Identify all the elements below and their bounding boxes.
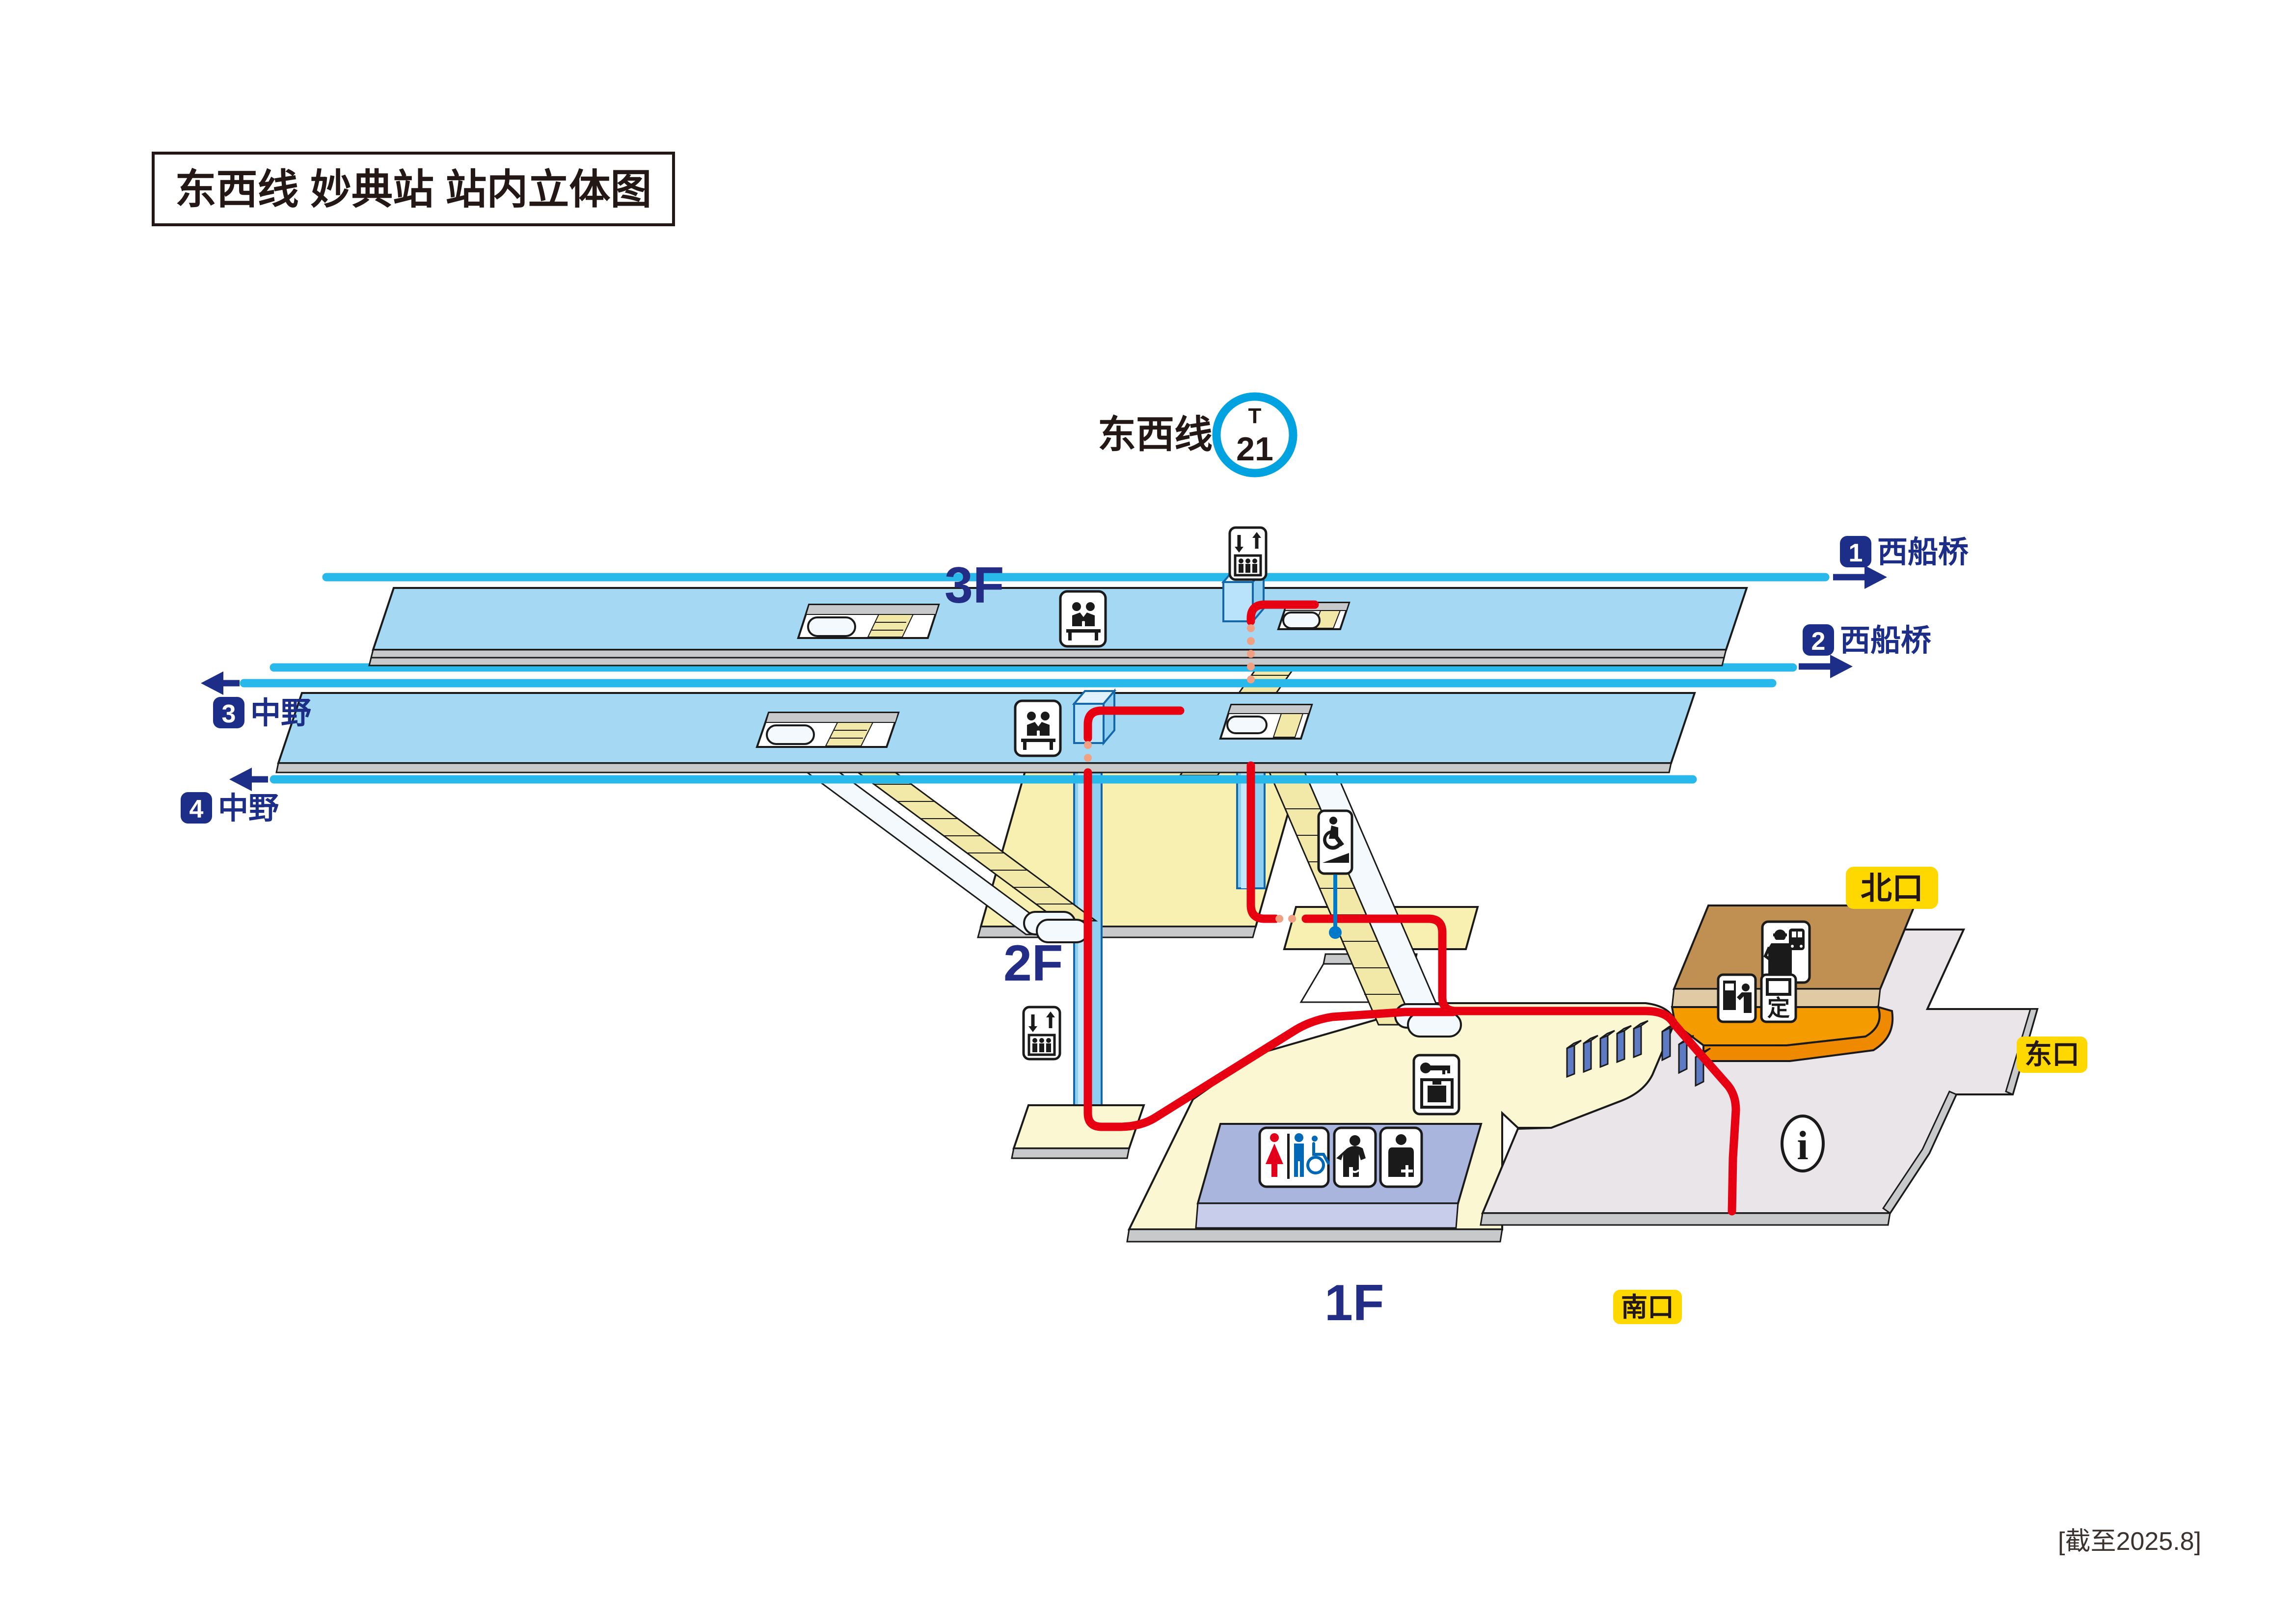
information-icon: i	[1782, 1116, 1823, 1171]
direction-1: 1 西船桥	[1833, 535, 1969, 589]
station-code-number: 21	[1236, 430, 1273, 468]
exit-badge-south: 南口	[1613, 1290, 1682, 1324]
baby-care-icon	[1334, 1128, 1376, 1187]
line-name: 东西线	[1098, 413, 1213, 456]
track-number: 3	[222, 700, 236, 728]
toilet-icon	[1260, 1128, 1328, 1187]
ticket-machine-icon	[1718, 975, 1756, 1022]
track-number: 4	[189, 795, 204, 824]
information-char: i	[1797, 1123, 1808, 1169]
destination-label: 中野	[218, 792, 279, 825]
escalator-foot	[1408, 1013, 1461, 1037]
station-3d-map: 1 西船桥 2 西船桥 3 中野 4 中野	[0, 0, 2296, 1623]
elevator-landing-1f	[1012, 1105, 1144, 1158]
escalator-foot	[767, 725, 814, 744]
station-office-icon	[1762, 922, 1810, 983]
divider	[1287, 1134, 1290, 1179]
floor-label-3f: 3F	[945, 557, 1004, 614]
arrow-left-icon	[229, 768, 252, 791]
stair-opening	[798, 605, 939, 638]
exit-label: 东口	[2025, 1039, 2080, 1070]
elevator-icon	[1230, 528, 1266, 580]
title-text: 东西线 妙典站 站内立体图	[175, 166, 652, 213]
elevator-icon	[1024, 1007, 1060, 1059]
commuter-pass-char: 定	[1767, 995, 1790, 1021]
exit-label: 南口	[1621, 1293, 1674, 1322]
escalator-foot	[1227, 717, 1267, 733]
revision-note: [截至2025.8]	[2058, 1527, 2201, 1556]
map-title: 东西线 妙典站 站内立体图	[153, 153, 674, 225]
station-code-letter: T	[1248, 404, 1262, 428]
destination-label: 中野	[250, 696, 311, 730]
arrow-left-icon	[201, 671, 223, 695]
platform-1	[369, 569, 1747, 665]
station-symbol: 东西线 T 21	[1098, 397, 1293, 473]
track-number: 1	[1849, 539, 1863, 567]
bench-icon	[1015, 701, 1060, 756]
destination-label: 西船桥	[1840, 624, 1931, 658]
stair-opening	[1220, 705, 1312, 739]
exit-badge-north: 北口	[1846, 867, 1938, 909]
platform-2	[276, 691, 1695, 772]
exit-label: 北口	[1861, 871, 1923, 906]
bench-icon	[1060, 591, 1106, 646]
exit-badge-east: 东口	[2017, 1037, 2087, 1073]
track-number: 2	[1811, 627, 1826, 656]
commuter-pass-machine-icon: 定	[1761, 975, 1796, 1022]
arrow-right-icon	[1830, 655, 1853, 678]
icon-pointer-dot	[1329, 926, 1342, 939]
escalator-foot	[1283, 612, 1320, 628]
direction-2: 2 西船桥	[1799, 624, 1931, 678]
escalator-foot	[808, 617, 855, 636]
nursing-room-icon	[1380, 1128, 1422, 1187]
destination-label: 西船桥	[1877, 535, 1969, 569]
direction-4: 4 中野	[181, 768, 279, 825]
floor-label-1f: 1F	[1324, 1275, 1384, 1331]
stair-opening	[757, 713, 898, 747]
floor-label-2f: 2F	[1003, 935, 1063, 992]
coin-locker-icon	[1414, 1055, 1459, 1114]
